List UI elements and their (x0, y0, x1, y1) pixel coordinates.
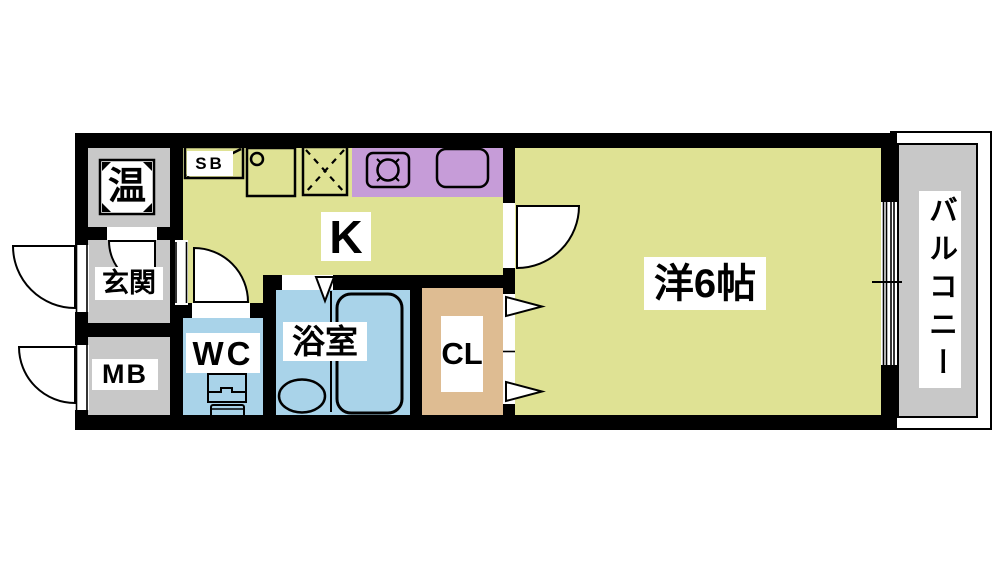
opening-mb-door (74, 345, 89, 410)
opening-balcony-window (881, 202, 897, 365)
entrance-door-swing (13, 246, 75, 308)
wall-wc-right (263, 275, 276, 415)
wall-bath-right (410, 275, 422, 415)
label-shoe-box: SB (187, 151, 233, 176)
label-water-heater: 温 (100, 160, 154, 214)
wall-bottom (75, 415, 897, 430)
kitchen-counter (352, 141, 503, 197)
label-toilet: WC (186, 333, 260, 373)
label-meter-box: MB (92, 359, 158, 390)
opening-entrance-kitchen (175, 240, 188, 305)
opening-kitchen-main-door (503, 203, 515, 268)
opening-bath-door (282, 275, 333, 290)
label-bathroom: 浴室 (283, 322, 367, 361)
wall-closet-top (422, 275, 515, 288)
floor-plan: 温 SB K 玄関 MB WC 浴室 CL 洋6帖 バルコニー (0, 0, 1000, 562)
label-western-room: 洋6帖 (644, 257, 766, 310)
opening-closet-doors (503, 294, 515, 404)
wall-top (75, 133, 897, 148)
wall-entrance-mb (88, 323, 170, 337)
opening-entrance-door (74, 245, 89, 312)
mb-door-swing (19, 347, 75, 403)
opening-heater-door (107, 227, 157, 240)
label-balcony: バルコニー (919, 191, 961, 388)
label-entrance: 玄関 (95, 267, 163, 300)
opening-wc-door (192, 303, 250, 318)
label-kitchen: K (321, 212, 371, 261)
label-closet: CL (441, 316, 483, 392)
